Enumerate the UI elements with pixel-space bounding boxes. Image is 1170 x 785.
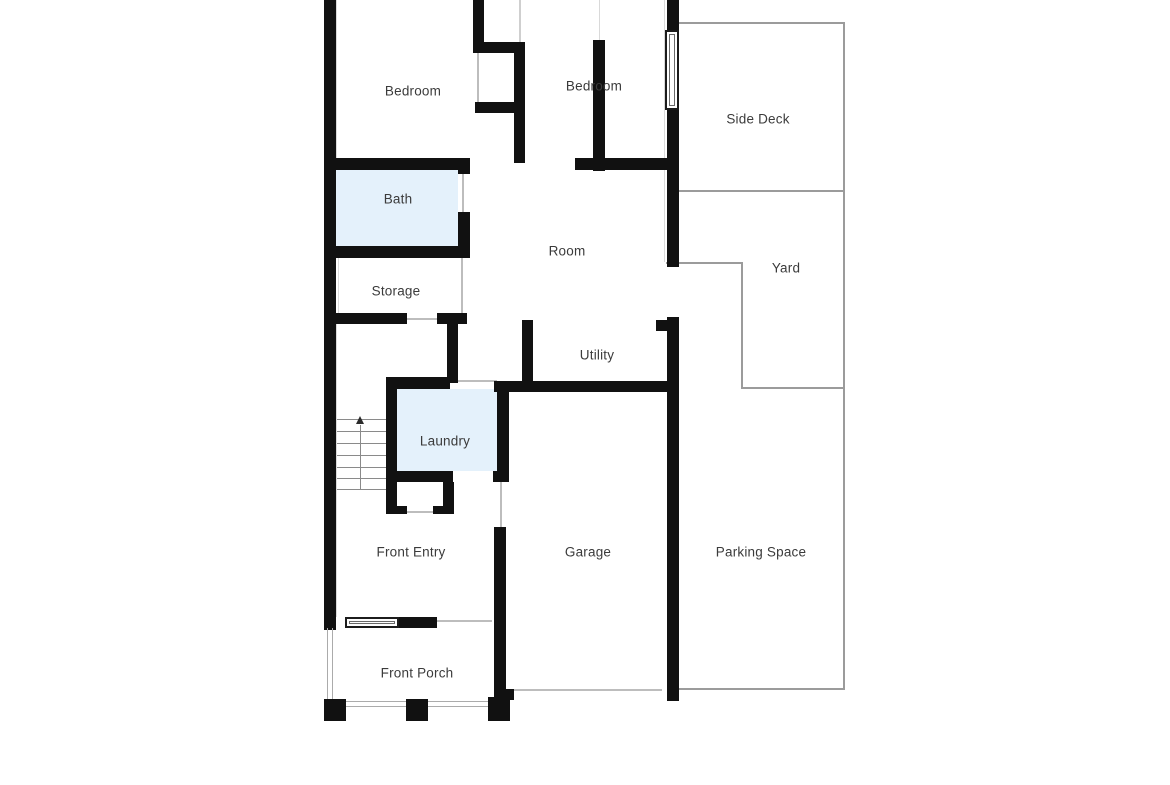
bath-room-fill [336,170,458,246]
room-label-bath: Bath [384,192,413,207]
wall-face-line [338,258,339,313]
porch-post [488,697,510,721]
wall [656,320,679,331]
parking-space-boundary [679,688,844,690]
stair-tread-line [337,443,386,444]
room-label-garage: Garage [565,545,611,560]
door-opening [407,318,437,320]
door-opening [519,0,521,42]
wall [447,313,458,383]
yard-boundary [741,262,743,389]
wall [324,158,467,170]
wall [494,381,679,392]
wall [494,527,506,701]
wall [399,617,437,628]
room-label-parking-space: Parking Space [716,545,806,560]
stair-tread-line [337,489,386,490]
door-opening [599,0,600,40]
stair-tread-line [337,455,386,456]
storage-door-opening [461,258,463,313]
wall [593,40,605,171]
wall [458,158,470,174]
wall [433,506,454,514]
room-label-yard: Yard [772,261,800,276]
wall [386,377,397,513]
stair-tread-line [337,431,386,432]
room-label-utility: Utility [580,348,614,363]
wall-face-line [336,0,337,158]
room-label-side-deck: Side Deck [726,112,789,127]
door-opening [407,511,433,513]
porch-post [406,699,428,721]
side-deck-boundary [679,22,844,24]
room-label-room: Room [549,244,586,259]
stairs-center-line [360,425,361,489]
porch-post [324,699,346,721]
front-door-opening [437,620,492,622]
window-pane [669,34,675,106]
window [345,617,399,628]
wall [324,313,407,324]
floor-plan-canvas: Bedroom Bedroom Side Deck Bath Room Yard… [0,0,1170,785]
wall [386,506,407,514]
wall [475,102,518,113]
wall [324,246,470,258]
wall [667,317,679,701]
property-right-boundary [843,22,845,690]
laundry-room-fill [397,389,497,471]
side-deck-boundary [679,190,844,192]
porch-edge-line [332,628,333,703]
stair-tread-line [337,478,386,479]
wall [497,381,509,478]
window-pane [349,621,395,624]
garage-entry-door-opening [500,478,502,527]
bath-door-opening [462,174,464,212]
room-label-storage: Storage [372,284,421,299]
wall [667,0,679,31]
room-label-bedroom-1: Bedroom [385,84,441,99]
porch-edge-line [327,628,328,703]
window [665,30,679,110]
wall-face-line [336,324,337,617]
wall [493,471,509,482]
room-label-bedroom-2: Bedroom [566,79,622,94]
door-opening [477,53,479,102]
stair-tread-line [337,467,386,468]
room-label-front-porch: Front Porch [381,666,454,681]
room-label-laundry: Laundry [420,434,470,449]
room-label-front-entry: Front Entry [377,545,446,560]
yard-boundary [741,387,845,389]
garage-door-opening [512,689,662,691]
stairs-up-arrow-icon [356,416,364,424]
wall [386,471,453,482]
wall [575,158,679,170]
wall [667,109,679,267]
